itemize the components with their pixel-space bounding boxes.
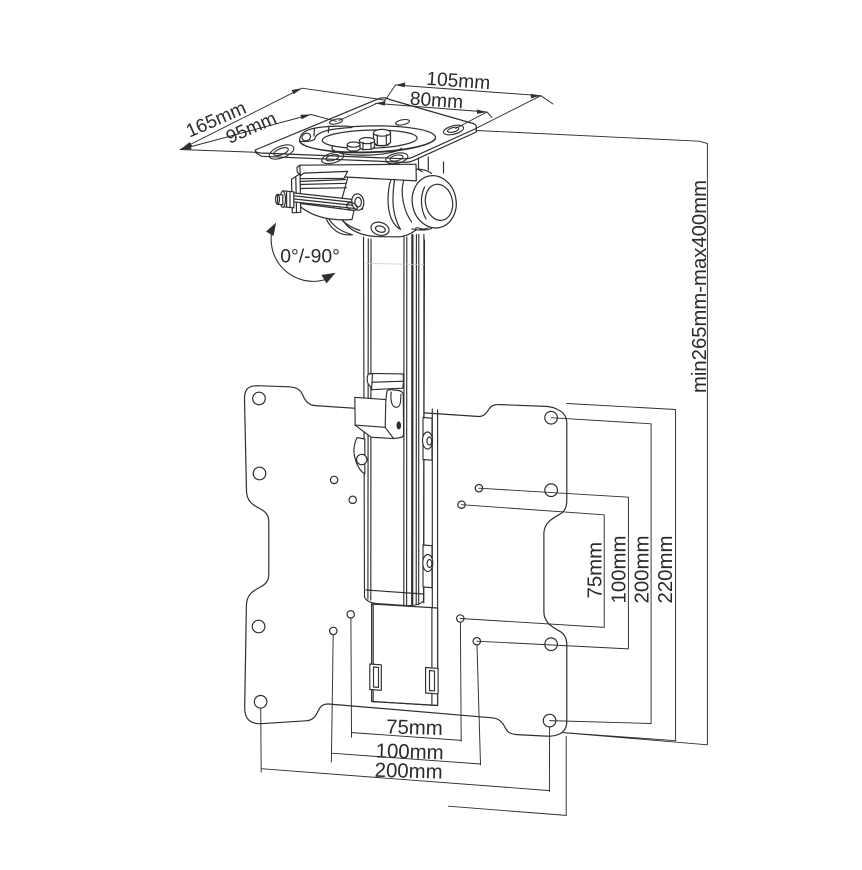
svg-text:75mm: 75mm <box>386 717 443 740</box>
svg-text:200mm: 200mm <box>631 536 653 604</box>
svg-text:75mm: 75mm <box>584 542 606 599</box>
svg-text:80mm: 80mm <box>409 89 464 114</box>
svg-text:0°/-90°: 0°/-90° <box>280 245 340 267</box>
svg-text:min265mm-max400mm: min265mm-max400mm <box>689 180 711 393</box>
svg-text:200mm: 200mm <box>374 760 443 784</box>
svg-text:220mm: 220mm <box>655 536 677 604</box>
svg-text:100mm: 100mm <box>608 536 630 604</box>
